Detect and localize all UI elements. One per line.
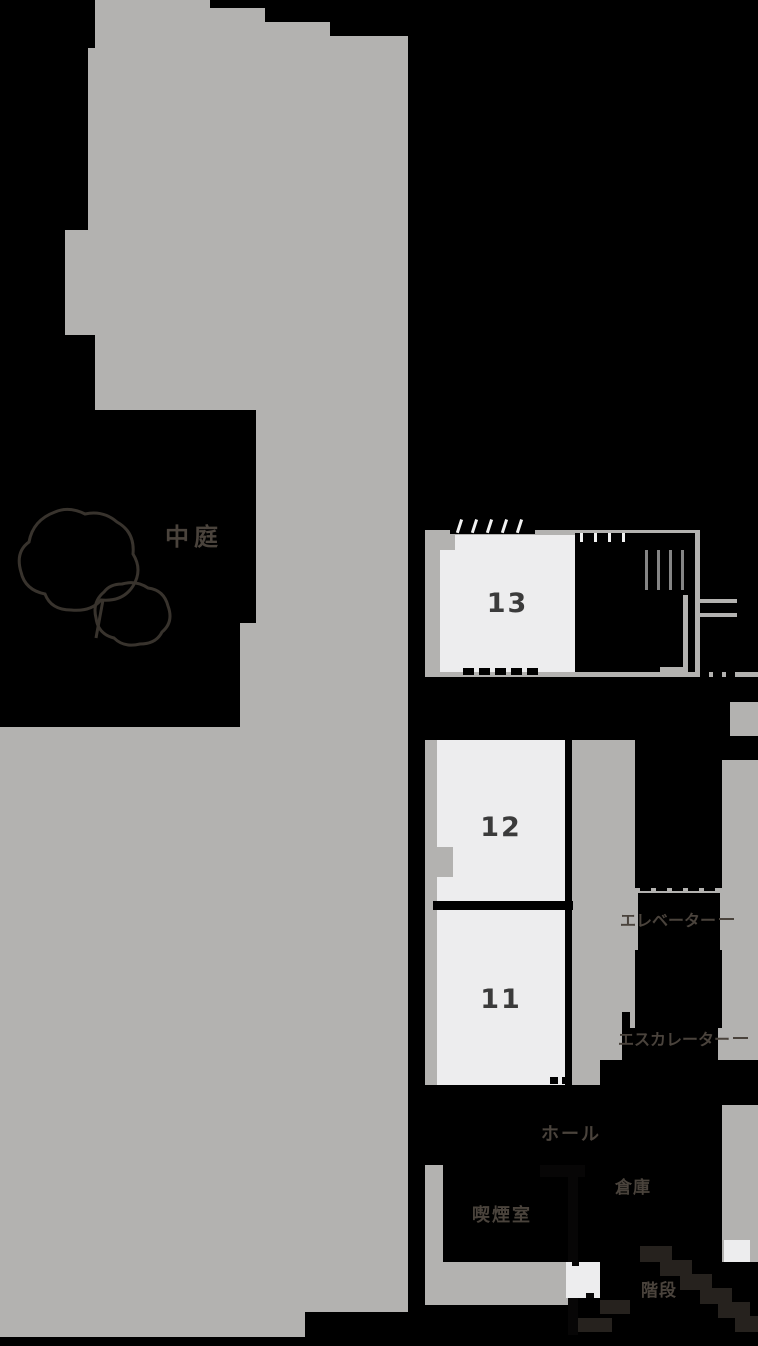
escalator-label: エスカレーター [618, 1032, 748, 1048]
tree-icon [95, 583, 170, 645]
smoking-room-label: 喫煙室 [472, 1207, 532, 1225]
floor-map-graphics [0, 0, 758, 1346]
leader-line [733, 1037, 748, 1039]
courtyard-label: 中庭 [165, 525, 223, 549]
hall-label: ホール [541, 1126, 601, 1144]
room-12-number: 12 [437, 814, 565, 841]
tree-icon [19, 509, 138, 610]
storage-label: 倉庫 [615, 1180, 651, 1197]
leader-line [719, 918, 734, 920]
elevator-icon [566, 1262, 600, 1298]
floor-map: 13 12 11 中庭 エレベーター エスカレーター ホール 喫煙室 倉庫 階段 [0, 0, 758, 1346]
stairs-label: 階段 [641, 1283, 677, 1300]
service-room [635, 950, 722, 1028]
left-building-outline [0, 0, 408, 1337]
service-room [635, 738, 722, 888]
room-11-number: 11 [437, 986, 565, 1013]
elevator-label: エレベーター [620, 913, 734, 929]
elevator-shaft-icon [724, 1240, 750, 1262]
door-hatch-top [450, 518, 535, 534]
courtyard-trees [19, 509, 170, 645]
corridor [425, 677, 758, 740]
left-building-block [0, 0, 408, 1337]
room-13-number: 13 [440, 590, 575, 617]
restroom-area [575, 533, 758, 672]
